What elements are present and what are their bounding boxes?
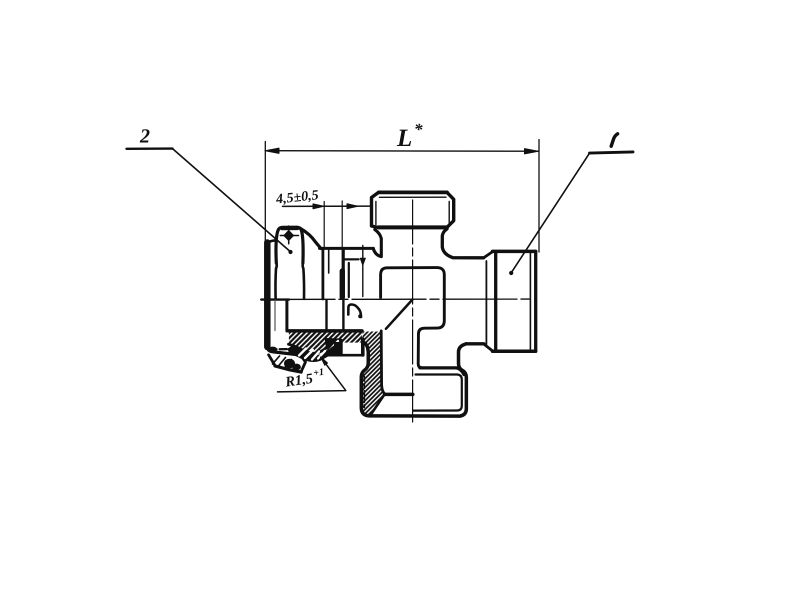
svg-text:*: * [414,120,423,139]
svg-text:2: 2 [139,126,150,148]
svg-text:R1,5: R1,5 [283,371,314,391]
svg-text:+1: +1 [313,367,325,379]
svg-text:L: L [396,125,412,152]
